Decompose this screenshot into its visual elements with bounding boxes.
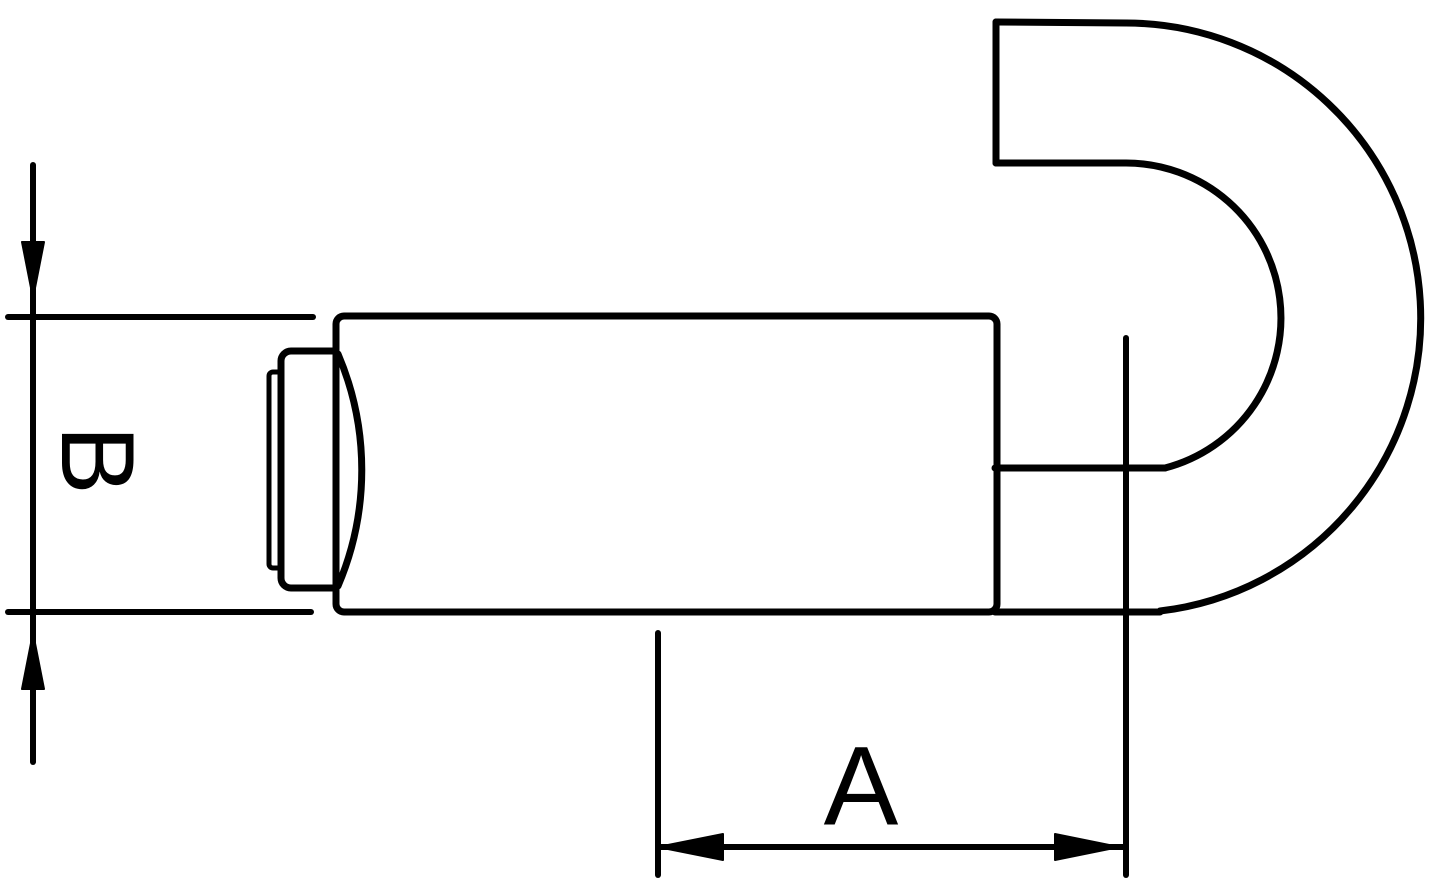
hook-inner-curve: [996, 163, 1281, 468]
part-outline-group: [269, 22, 1421, 612]
dim-a-arrowhead-left-icon: [658, 834, 723, 860]
dim-b-arrowhead-up-icon: [22, 633, 44, 689]
end-cap-body: [281, 351, 336, 588]
hook-part-drawing: B A: [0, 0, 1447, 890]
dim-a-arrowhead-right-icon: [1055, 834, 1119, 860]
dimension-a-group: A: [658, 338, 1126, 875]
technical-drawing-canvas: B A: [0, 0, 1447, 890]
dim-a-label: A: [824, 724, 899, 849]
dim-b-label: B: [39, 425, 155, 494]
end-cap-dome-arc: [338, 354, 362, 586]
dim-b-arrowhead-down-icon: [22, 242, 44, 298]
cylinder-body: [336, 316, 997, 612]
hook-outer-curve: [996, 22, 1421, 611]
